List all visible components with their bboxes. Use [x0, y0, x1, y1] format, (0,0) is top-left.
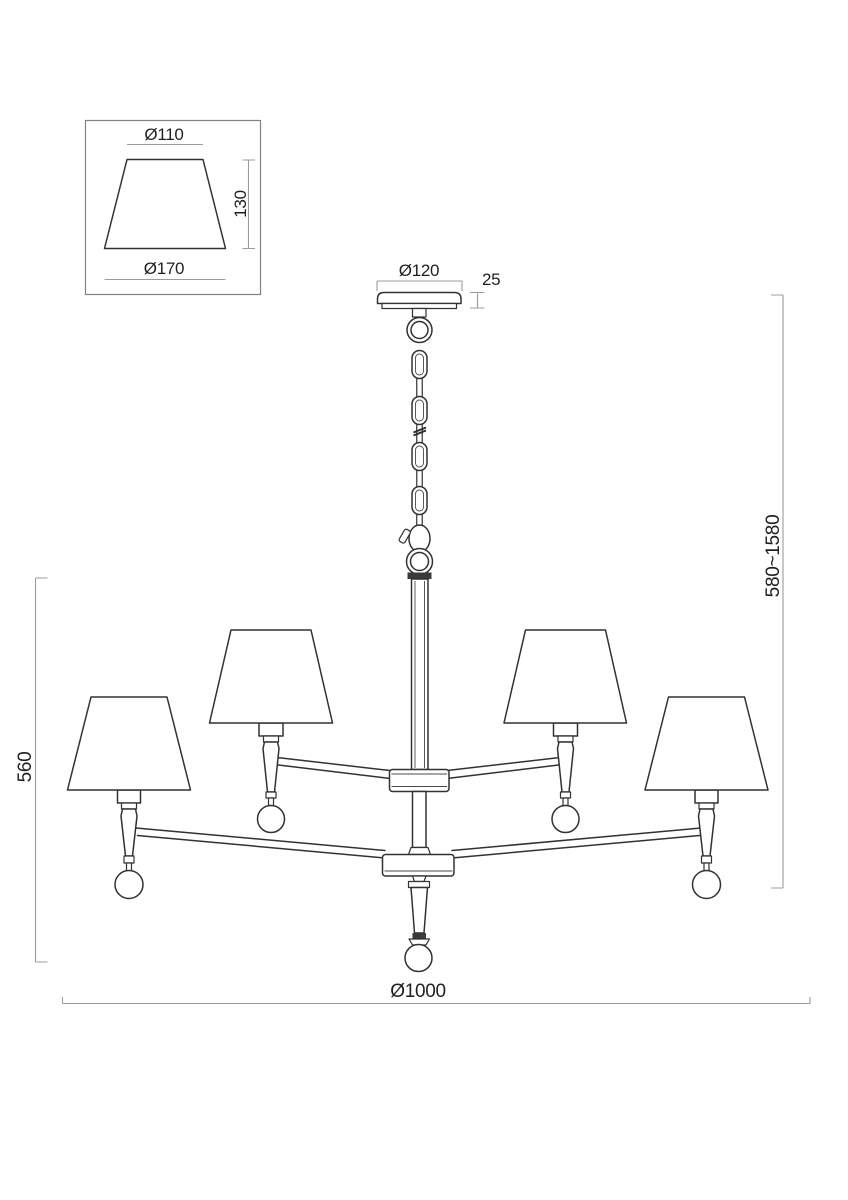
arm-outer-left: [136, 828, 385, 858]
lamp-stem-collar: [124, 856, 134, 863]
shade-detail-outline: [105, 160, 226, 249]
lamp-stem: [263, 742, 279, 792]
lamp-socket-disc: [558, 736, 573, 742]
upper-arm-hub: [390, 770, 450, 792]
canopy-lip: [382, 304, 457, 309]
arm-inner-left: [277, 758, 390, 779]
lamp-ball-finial: [115, 871, 143, 899]
rod-flare-collar: [409, 848, 431, 855]
canopy-neck: [413, 309, 427, 318]
canopy-diameter-dimension-line: [377, 281, 462, 291]
lamp-stem: [121, 809, 137, 856]
central-rod-upper: [412, 579, 429, 770]
central-column: [383, 579, 455, 972]
chandelier-dimension-drawing: Ø110 130 Ø170 560 580~1580 Ø1000 Ø120 25: [0, 0, 848, 1200]
canopy-body: [378, 293, 462, 304]
lamp-stem: [558, 742, 574, 792]
body-height-label: 560: [15, 752, 36, 783]
lamp-ball-finial: [552, 806, 579, 833]
lamp-outer-right: [645, 697, 768, 899]
canopy-hook-ring-inner: [411, 322, 428, 339]
chain-link: [412, 443, 427, 471]
lamp-shade: [504, 630, 627, 723]
lamp-stem-collar: [561, 792, 571, 798]
lamp-socket: [554, 723, 578, 736]
lamp-socket-disc: [264, 736, 279, 742]
lamp-stem-neck: [563, 798, 568, 806]
lamp-inner-right: [504, 630, 627, 833]
arm-inner-right: [447, 758, 560, 779]
lamp-inner-left: [210, 630, 333, 833]
lamp-shade: [68, 697, 191, 790]
shade-bottom-diameter-label: Ø170: [144, 259, 184, 278]
canopy-height-label: 25: [482, 270, 500, 289]
finial-band: [413, 933, 427, 939]
lamp-ball-finial: [693, 871, 721, 899]
lamp-stem-collar: [266, 792, 276, 798]
canopy-height-dimension-line: [470, 293, 485, 309]
arm-outer-right: [452, 828, 701, 858]
finial-ball: [405, 945, 432, 972]
suspension-range-label: 580~1580: [763, 515, 784, 598]
body-height-dimension-line: [36, 578, 48, 962]
technical-drawing-page: Ø110 130 Ø170 560 580~1580 Ø1000 Ø120 25: [0, 0, 848, 1200]
finial-collar: [409, 882, 430, 888]
lamp-stem-collar: [702, 856, 712, 863]
lamp-ball-finial: [258, 806, 285, 833]
overall-diameter-label: Ø1000: [390, 981, 446, 1002]
central-rod-middle: [413, 792, 427, 848]
lamp-socket: [695, 790, 718, 803]
chain-link: [412, 397, 427, 425]
rod-top-collar: [408, 573, 432, 580]
chain-link: [412, 487, 427, 515]
chain-link: [412, 351, 427, 379]
lamp-shade: [645, 697, 768, 790]
shade-detail-view: Ø110 130 Ø170: [86, 121, 261, 295]
lamp-stem: [699, 809, 715, 856]
lamp-shade: [210, 630, 333, 723]
lamp-socket-disc: [122, 803, 137, 809]
hanging-chain: [398, 351, 432, 580]
finial-neck: [413, 876, 427, 882]
lamp-socket: [118, 790, 141, 803]
finial-stem: [411, 888, 428, 934]
lower-arm-hub: [383, 855, 455, 877]
shade-top-diameter-label: Ø110: [144, 125, 183, 144]
lamp-outer-left: [68, 697, 191, 899]
canopy-diameter-label: Ø120: [399, 261, 439, 280]
ceiling-canopy: [378, 293, 462, 343]
lamp-socket: [259, 723, 283, 736]
lamp-stem-neck: [269, 798, 274, 806]
shade-height-label: 130: [231, 190, 250, 217]
lamp-socket-disc: [699, 803, 714, 809]
